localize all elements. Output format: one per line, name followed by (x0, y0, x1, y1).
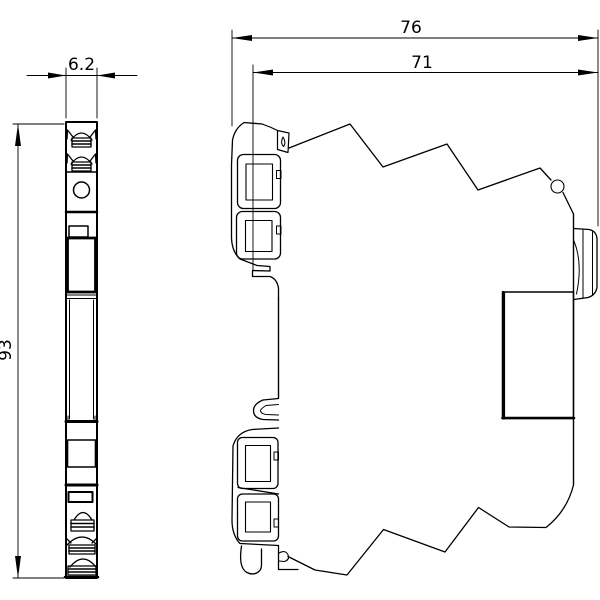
front-view (65, 122, 98, 578)
side-view (232, 123, 598, 576)
dim-width-label: 6.2 (68, 55, 95, 75)
dim-height-label: 93 (0, 339, 16, 361)
front-marking-window (68, 238, 96, 292)
front-label-tab (69, 226, 88, 237)
front-bottom-terminals (66, 513, 97, 576)
dimension-width: 6.2 (27, 55, 137, 118)
front-lower-window (68, 440, 96, 467)
dim-depth-body-label: 71 (411, 53, 433, 73)
front-top-terminal-1 (67, 130, 96, 147)
housing-top-edge (289, 124, 551, 190)
led-indicator-circle (74, 182, 90, 198)
top-edge-circle-detail (551, 180, 564, 193)
housing-bottom-edge (288, 485, 574, 575)
dimension-depth-body: 71 (253, 53, 598, 270)
dimension-depth-total: 76 (232, 18, 598, 226)
clip-release-latch (279, 552, 289, 562)
front-top-terminal-2 (67, 154, 96, 171)
dim-depth-total-label: 76 (400, 18, 422, 38)
terminal-cage-4 (238, 494, 279, 541)
front-view-outline (66, 122, 97, 578)
technical-drawing: 6.2 93 76 71 (0, 0, 600, 600)
side-upper-terminal-block (232, 123, 279, 299)
front-lower-label (69, 492, 93, 502)
side-label-field (503, 292, 575, 419)
drawing-lines: 6.2 93 76 71 (0, 18, 598, 578)
funnel-drop-detail (282, 137, 285, 147)
din-rail-hook-upper (574, 229, 597, 300)
dimension-height: 93 (0, 124, 64, 578)
din-rail-clip-foot (241, 546, 262, 574)
